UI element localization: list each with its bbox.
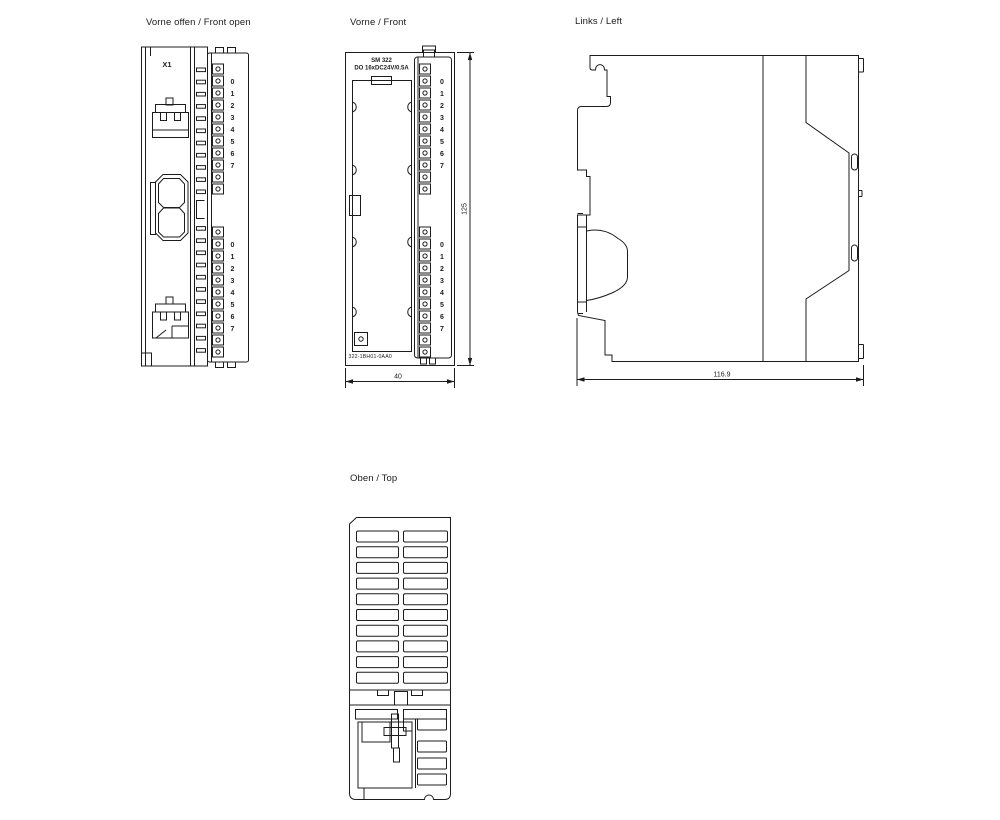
vent-slot xyxy=(418,719,447,730)
front-open-terminal-strip-bottom: 01234567 xyxy=(213,227,235,357)
vent-slot xyxy=(357,562,399,573)
front-open-bottom-latch xyxy=(153,297,189,338)
channel-number: 6 xyxy=(440,151,444,158)
vent-slot xyxy=(357,625,399,636)
plate-cutout xyxy=(408,307,412,317)
bus-contact-slot xyxy=(197,324,206,328)
terminal-screw-icon xyxy=(216,127,220,131)
terminal-square xyxy=(420,239,431,249)
terminal-square xyxy=(420,136,431,146)
terminal-screw-icon xyxy=(423,163,427,167)
channel-number: 3 xyxy=(440,278,444,285)
plate-cutout xyxy=(353,102,357,112)
channel-number: 7 xyxy=(440,326,444,333)
door-recess xyxy=(362,722,390,742)
front-terminal-strip-top: 01234567 xyxy=(420,64,445,194)
channel-number: 2 xyxy=(231,266,235,273)
terminal-screw-icon xyxy=(423,326,427,330)
wide-slot xyxy=(404,710,447,720)
front-open-top-latch xyxy=(153,98,189,138)
plate-cutout xyxy=(353,165,357,175)
dimension-depth-value: 116.9 xyxy=(714,372,731,379)
terminal-screw-icon xyxy=(216,230,220,234)
channel-number: 1 xyxy=(440,254,444,261)
clamp-rail xyxy=(151,183,156,235)
band-lines xyxy=(350,690,451,705)
terminal-square xyxy=(420,299,431,309)
arrow-left-icon xyxy=(346,379,354,383)
block-bottom-tab xyxy=(421,358,427,364)
channel-number: 5 xyxy=(440,139,444,146)
plate-cutout xyxy=(353,237,357,247)
terminal-square xyxy=(213,227,224,237)
channel-number: 4 xyxy=(231,127,235,134)
drawing-canvas: Vorne offen / Front open X1 xyxy=(0,0,1000,820)
terminal-square xyxy=(213,172,224,182)
terminal-block-outline xyxy=(208,53,249,362)
latch-housing xyxy=(153,113,189,138)
bus-contact-slot xyxy=(197,178,206,182)
arrow-left-icon xyxy=(577,377,585,381)
labeling-plate xyxy=(353,81,412,352)
latch-foot xyxy=(394,748,400,762)
latch-bar xyxy=(156,304,186,312)
front-open-terminal-block: 01234567 01234567 xyxy=(208,48,249,368)
terminal-screw-icon xyxy=(423,79,427,83)
view-title-left: Links / Left xyxy=(575,16,622,27)
terminal-screw-icon xyxy=(423,290,427,294)
latch-foot xyxy=(161,113,167,121)
left-side-outline xyxy=(578,56,864,362)
bus-contact-slot xyxy=(197,129,206,133)
vent-slot xyxy=(404,594,448,605)
channel-number: 5 xyxy=(440,302,444,309)
terminal-square xyxy=(213,299,224,309)
vent-slot xyxy=(404,562,448,573)
vent-slot xyxy=(404,641,448,652)
terminal-square xyxy=(213,124,224,134)
terminal-screw-icon xyxy=(423,242,427,246)
terminal-screw-icon xyxy=(216,290,220,294)
vent-slot xyxy=(357,641,399,652)
housing-silhouette xyxy=(578,56,859,362)
latch-housing-line xyxy=(156,326,189,338)
channel-number: 0 xyxy=(231,242,235,249)
bus-contact-slot xyxy=(197,288,206,292)
channel-number: 6 xyxy=(231,151,235,158)
top-tab xyxy=(423,46,436,53)
terminal-screw-icon xyxy=(423,302,427,306)
channel-number: 0 xyxy=(440,79,444,86)
terminal-square xyxy=(420,347,431,357)
channel-number: 4 xyxy=(231,290,235,297)
terminal-screw-icon xyxy=(216,67,220,71)
front-open-terminal-strip-top: 01234567 xyxy=(213,64,235,194)
view-title-top: Oben / Top xyxy=(350,473,397,484)
terminal-screw-icon xyxy=(216,350,220,354)
channel-number: 3 xyxy=(440,115,444,122)
terminal-screw-icon xyxy=(216,175,220,179)
terminal-screw-icon xyxy=(423,230,427,234)
terminal-screw-icon xyxy=(423,151,427,155)
vent-slot xyxy=(357,657,399,668)
terminal-screw-icon xyxy=(216,338,220,342)
bus-contact-slot xyxy=(197,92,206,96)
terminal-square xyxy=(213,335,224,345)
vent-slot xyxy=(404,610,448,621)
terminal-square xyxy=(420,323,431,333)
vent-slot xyxy=(357,610,399,621)
bus-contact-slot xyxy=(197,68,206,72)
channel-number: 7 xyxy=(440,163,444,170)
vent-slot xyxy=(357,594,399,605)
channel-number: 4 xyxy=(440,127,444,134)
terminal-square xyxy=(213,160,224,170)
terminal-square xyxy=(213,347,224,357)
terminal-square xyxy=(420,88,431,98)
channel-number: 7 xyxy=(231,326,235,333)
vent-slot xyxy=(404,672,448,683)
arrow-up-icon xyxy=(468,53,472,61)
channel-number: 4 xyxy=(440,290,444,297)
latch-bar xyxy=(384,728,406,736)
latch-foot xyxy=(175,312,181,320)
channel-number: 2 xyxy=(231,103,235,110)
slot-step xyxy=(404,719,413,731)
terminal-screw-icon xyxy=(423,139,427,143)
front-panel-bevel xyxy=(806,56,849,362)
terminal-square xyxy=(420,227,431,237)
terminal-screw-icon xyxy=(216,187,220,191)
view-front-open: Vorne offen / Front open X1 xyxy=(142,17,251,368)
terminal-screw-icon xyxy=(423,115,427,119)
latch-bar xyxy=(156,105,186,113)
terminal-square xyxy=(420,335,431,345)
channel-number: 5 xyxy=(231,302,235,309)
block-bottom-tab xyxy=(216,362,224,368)
arrow-right-icon xyxy=(856,377,864,381)
terminal-screw-icon xyxy=(216,278,220,282)
terminal-screw-icon xyxy=(216,242,220,246)
front-terminal-strip-bottom: 01234567 xyxy=(420,227,445,357)
plate-cutout xyxy=(353,307,357,317)
latch-housing xyxy=(153,312,189,338)
hinge-slot xyxy=(852,245,858,261)
terminal-screw-icon xyxy=(423,254,427,258)
terminal-square xyxy=(213,76,224,86)
terminal-screw-icon xyxy=(216,326,220,330)
bus-contact-slot xyxy=(197,105,206,109)
vent-slot xyxy=(404,578,448,589)
bus-contact-slot xyxy=(197,153,206,157)
module-type-text: DO 16xDC24V/0.5A xyxy=(354,66,409,72)
view-top: Oben / Top xyxy=(350,473,451,800)
terminal-screw-icon xyxy=(216,314,220,318)
vent-slot xyxy=(357,531,399,542)
terminal-screw-icon xyxy=(216,266,220,270)
view-left: Links / Left 116.9 xyxy=(575,16,864,386)
terminal-screw-icon xyxy=(423,91,427,95)
block-top-tab xyxy=(424,50,435,57)
block-bottom-tab xyxy=(228,362,236,368)
terminal-square xyxy=(213,88,224,98)
bus-contact-slot xyxy=(197,336,206,340)
terminal-square xyxy=(420,160,431,170)
clamp-octagon xyxy=(159,179,185,208)
vent-slot xyxy=(404,547,448,558)
dimension-width-value: 40 xyxy=(394,374,402,381)
latch-foot xyxy=(175,113,181,121)
dimension-height-value: 125 xyxy=(462,203,469,215)
channel-number: 6 xyxy=(440,314,444,321)
terminal-screw-icon xyxy=(216,115,220,119)
terminal-square xyxy=(213,263,224,273)
front-plate-cutouts xyxy=(353,102,412,317)
terminal-square xyxy=(213,112,224,122)
terminal-square xyxy=(420,311,431,321)
plate-cutout xyxy=(408,237,412,247)
edge-hooks xyxy=(859,59,864,359)
arrow-right-icon xyxy=(447,379,455,383)
latch-stem xyxy=(166,98,173,105)
channel-number: 1 xyxy=(440,91,444,98)
bus-contact-slot xyxy=(197,275,206,279)
channel-number: 2 xyxy=(440,103,444,110)
channel-number: 3 xyxy=(231,115,235,122)
arrow-down-icon xyxy=(468,358,472,366)
top-lower-slots xyxy=(418,719,447,785)
vent-slot xyxy=(404,531,448,542)
terminal-screw-icon xyxy=(423,266,427,270)
terminal-screw-icon xyxy=(216,103,220,107)
band-notch xyxy=(412,690,423,696)
terminal-square xyxy=(213,323,224,333)
vent-slot xyxy=(404,625,448,636)
channel-number: 3 xyxy=(231,278,235,285)
channel-number: 6 xyxy=(231,314,235,321)
bus-contact-slot xyxy=(197,190,206,194)
front-terminal-block: 01234567 01234567 xyxy=(415,50,452,364)
terminal-square xyxy=(420,263,431,273)
vent-slot xyxy=(357,547,399,558)
terminal-screw-icon xyxy=(423,278,427,282)
fuse-screw xyxy=(359,337,363,341)
bus-contact-slot xyxy=(197,312,206,316)
vent-slot xyxy=(357,578,399,589)
latch-foot xyxy=(161,312,167,320)
terminal-square xyxy=(213,251,224,261)
terminal-square xyxy=(420,112,431,122)
terminal-screw-icon xyxy=(216,151,220,155)
bus-contact-slot xyxy=(197,251,206,255)
channel-number: 1 xyxy=(231,254,235,261)
terminal-square xyxy=(213,287,224,297)
connector-x1-label: X1 xyxy=(162,60,171,69)
terminal-square xyxy=(420,251,431,261)
front-open-bus-contacts xyxy=(197,68,206,352)
terminal-square xyxy=(420,184,431,194)
plate-cutout xyxy=(408,102,412,112)
block-top-tab xyxy=(228,48,236,54)
terminal-screw-icon xyxy=(216,302,220,306)
terminal-square xyxy=(420,100,431,110)
terminal-screw-icon xyxy=(423,338,427,342)
terminal-screw-icon xyxy=(216,91,220,95)
door-hinge xyxy=(350,196,361,216)
terminal-square xyxy=(213,64,224,74)
top-view-body xyxy=(350,518,451,800)
view-front: Vorne / Front SM 322 DO 16xDC24V/0.5A 32… xyxy=(346,17,475,388)
terminal-screw-icon xyxy=(216,163,220,167)
block-top-tab xyxy=(216,48,224,54)
terminal-square xyxy=(213,239,224,249)
latch-stem xyxy=(166,297,173,304)
rail-clamp-lines xyxy=(578,214,587,314)
channel-number: 2 xyxy=(440,266,444,273)
terminal-square xyxy=(420,124,431,134)
dimension-height-125: 125 xyxy=(457,53,474,366)
terminal-square xyxy=(213,275,224,285)
bus-contact-slot xyxy=(197,239,206,243)
bus-bracket xyxy=(197,201,205,219)
center-tab xyxy=(395,692,408,706)
bus-contact-slot xyxy=(197,300,206,304)
terminal-screw-icon xyxy=(423,67,427,71)
terminal-square xyxy=(213,136,224,146)
module-name-text: SM 322 xyxy=(371,58,392,64)
terminal-screw-icon xyxy=(216,79,220,83)
band-notch xyxy=(378,690,389,696)
bus-contact-slot xyxy=(197,141,206,145)
terminal-screw-icon xyxy=(216,139,220,143)
clamp-octagon xyxy=(159,208,185,237)
order-number-text: 322-1BH01-0AA0 xyxy=(349,354,392,360)
dimension-depth-116-9: 116.9 xyxy=(577,318,864,386)
channel-number: 5 xyxy=(231,139,235,146)
terminal-square xyxy=(420,76,431,86)
vent-slot xyxy=(418,758,447,769)
vent-slot xyxy=(357,672,399,683)
terminal-square xyxy=(420,275,431,285)
vent-slot xyxy=(418,774,447,785)
hinge-slot xyxy=(852,154,858,170)
terminal-screw-icon xyxy=(423,127,427,131)
view-title-front: Vorne / Front xyxy=(350,17,406,28)
front-door-area xyxy=(358,722,412,788)
terminal-square xyxy=(420,148,431,158)
dimension-width-40: 40 xyxy=(346,368,455,388)
vent-slot xyxy=(418,741,447,752)
vent-slot xyxy=(404,657,448,668)
terminal-screw-icon xyxy=(423,350,427,354)
block-bottom-tab xyxy=(430,358,436,364)
terminal-block-outline xyxy=(415,57,452,358)
bus-contact-slot xyxy=(197,117,206,121)
module-body-outline xyxy=(346,53,455,366)
terminal-square xyxy=(420,172,431,182)
top-vent-slots xyxy=(357,531,448,683)
terminal-square xyxy=(420,64,431,74)
bus-connector-bump xyxy=(587,230,628,301)
bus-contact-slot xyxy=(197,80,206,84)
terminal-screw-icon xyxy=(423,314,427,318)
terminal-square xyxy=(420,287,431,297)
front-module-body: SM 322 DO 16xDC24V/0.5A 322-1BH01-0AA0 xyxy=(346,46,455,366)
bottom-left-step xyxy=(142,353,152,366)
plate-cutout xyxy=(408,165,412,175)
channel-number: 0 xyxy=(440,242,444,249)
bus-contact-slot xyxy=(197,263,206,267)
channel-number: 1 xyxy=(231,91,235,98)
bus-contact-slot xyxy=(197,166,206,170)
terminal-screw-icon xyxy=(423,103,427,107)
bus-contact-slot xyxy=(197,227,206,231)
fuse-box xyxy=(355,333,368,346)
terminal-screw-icon xyxy=(216,254,220,258)
terminal-square xyxy=(213,184,224,194)
dimension-drawing: Vorne offen / Front open X1 xyxy=(0,0,1000,820)
terminal-square xyxy=(213,148,224,158)
bus-contact-slot xyxy=(197,349,206,353)
channel-number: 7 xyxy=(231,163,235,170)
view-title-front-open: Vorne offen / Front open xyxy=(146,17,251,28)
terminal-screw-icon xyxy=(423,187,427,191)
terminal-square xyxy=(213,100,224,110)
terminal-square xyxy=(213,311,224,321)
channel-number: 0 xyxy=(231,79,235,86)
terminal-screw-icon xyxy=(423,175,427,179)
